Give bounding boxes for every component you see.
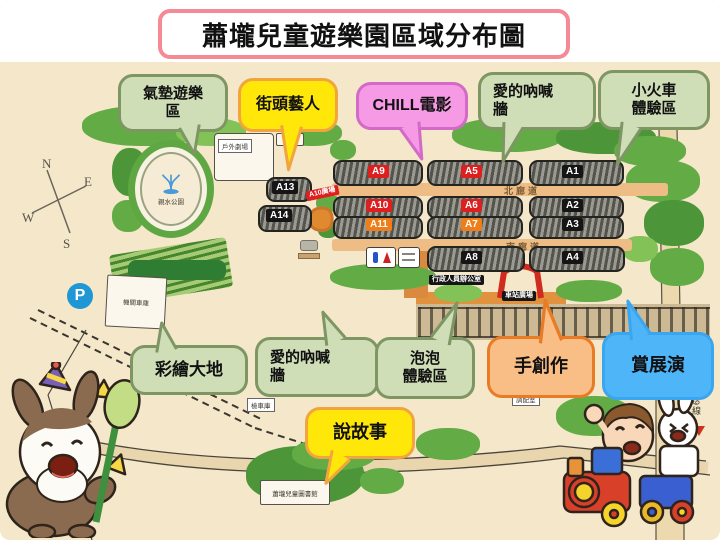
label-a9: A9 [368, 165, 389, 178]
label-a3: A3 [562, 218, 583, 231]
page-title: 蕭壠兒童遊樂園區域分布圖 [158, 9, 570, 59]
callout-text: 牆 [493, 101, 508, 119]
compass-n: N [42, 156, 52, 171]
rabbit-mascot-illustration [0, 362, 152, 538]
bubble-tail [275, 125, 304, 173]
callout-street-artist: 街頭藝人 [238, 78, 338, 132]
label-a10: A10 [366, 199, 392, 212]
outdoor-theater-label: 戶外劇場 [218, 139, 252, 153]
label-a5: A5 [461, 165, 482, 178]
callout-text: CHILL電影 [372, 97, 451, 116]
callout-text: 氣墊遊樂 [143, 85, 203, 103]
compass-w: W [22, 210, 35, 225]
tree-cluster [360, 468, 404, 494]
compass-icon [32, 170, 86, 233]
bubble-tail [531, 296, 565, 343]
callout-text: 說故事 [333, 422, 387, 443]
admin-office-label: 行政人員辦公室 [429, 275, 484, 285]
tree-cluster [434, 284, 482, 302]
fountain-icon [158, 173, 184, 195]
callout-love-shout-wall-bottom: 愛的吶喊 牆 [255, 337, 379, 397]
label-a7: A7 [461, 218, 482, 231]
label-a2: A2 [562, 199, 583, 212]
callout-text: 手創作 [514, 356, 568, 377]
bubble-tail [149, 319, 180, 353]
parking-icon: P [67, 283, 93, 309]
callout-exhibition: 賞展演 [602, 332, 714, 400]
callout-text: 賞展演 [631, 355, 685, 376]
label-a14: A14 [266, 209, 292, 222]
bubble-tail [177, 124, 208, 158]
callout-mini-train-zone: 小火車 體驗區 [598, 70, 710, 130]
water-park-pond: 親水公園 [140, 152, 202, 226]
compass-e: E [84, 174, 92, 189]
tree-cluster [330, 140, 356, 160]
cow-statue [300, 240, 318, 251]
playground-map: N E W S [0, 0, 720, 540]
male-icon [373, 252, 378, 263]
callout-text: 彩繪大地 [155, 360, 223, 380]
callout-text: 區 [165, 103, 180, 121]
label-a11: A11 [366, 218, 392, 231]
callout-air-cushion-zone: 氣墊遊樂 區 [118, 74, 228, 132]
label-a6: A6 [461, 199, 482, 212]
callout-text: 體驗區 [631, 100, 676, 118]
shop-icon [398, 247, 420, 268]
callout-storytelling: 說故事 [305, 407, 415, 459]
tree-cluster [112, 200, 144, 232]
bench [298, 253, 320, 259]
tree-cluster [556, 280, 622, 302]
inspection-garage-label: 檢車庫 [247, 398, 275, 412]
label-a13: A13 [272, 181, 298, 194]
children-library: 蕭壠兒童圖書館 [260, 480, 330, 505]
compass-s: S [63, 236, 70, 251]
label-a8: A8 [461, 251, 482, 264]
label-a1: A1 [562, 165, 583, 178]
kids-train-illustration [552, 384, 714, 540]
tree-cluster [650, 248, 704, 286]
callout-text: 愛的吶喊 [493, 83, 553, 101]
callout-chill-movie: CHILL電影 [356, 82, 468, 130]
callout-painted-land: 彩繪大地 [130, 345, 248, 395]
restroom-icon [366, 247, 396, 268]
callout-text: 街頭藝人 [256, 96, 320, 115]
tree-cluster [416, 428, 480, 460]
callout-text: 體驗區 [402, 368, 447, 386]
water-park-label: 親水公園 [158, 196, 184, 206]
label-a4: A4 [562, 251, 583, 264]
locomotive-garage-label: 機關車庫 [123, 296, 149, 307]
callout-text: 牆 [270, 367, 285, 385]
callout-text: 小火車 [631, 82, 676, 100]
callout-hand-craft: 手創作 [487, 336, 595, 398]
children-library-label: 蕭壠兒童圖書館 [272, 488, 318, 498]
callout-bubble-zone: 泡泡 體驗區 [375, 337, 475, 399]
callout-text: 愛的吶喊 [270, 349, 330, 367]
female-icon [383, 252, 391, 263]
callout-text: 泡泡 [410, 350, 440, 368]
callout-love-shout-wall-top: 愛的吶喊 牆 [478, 72, 596, 130]
